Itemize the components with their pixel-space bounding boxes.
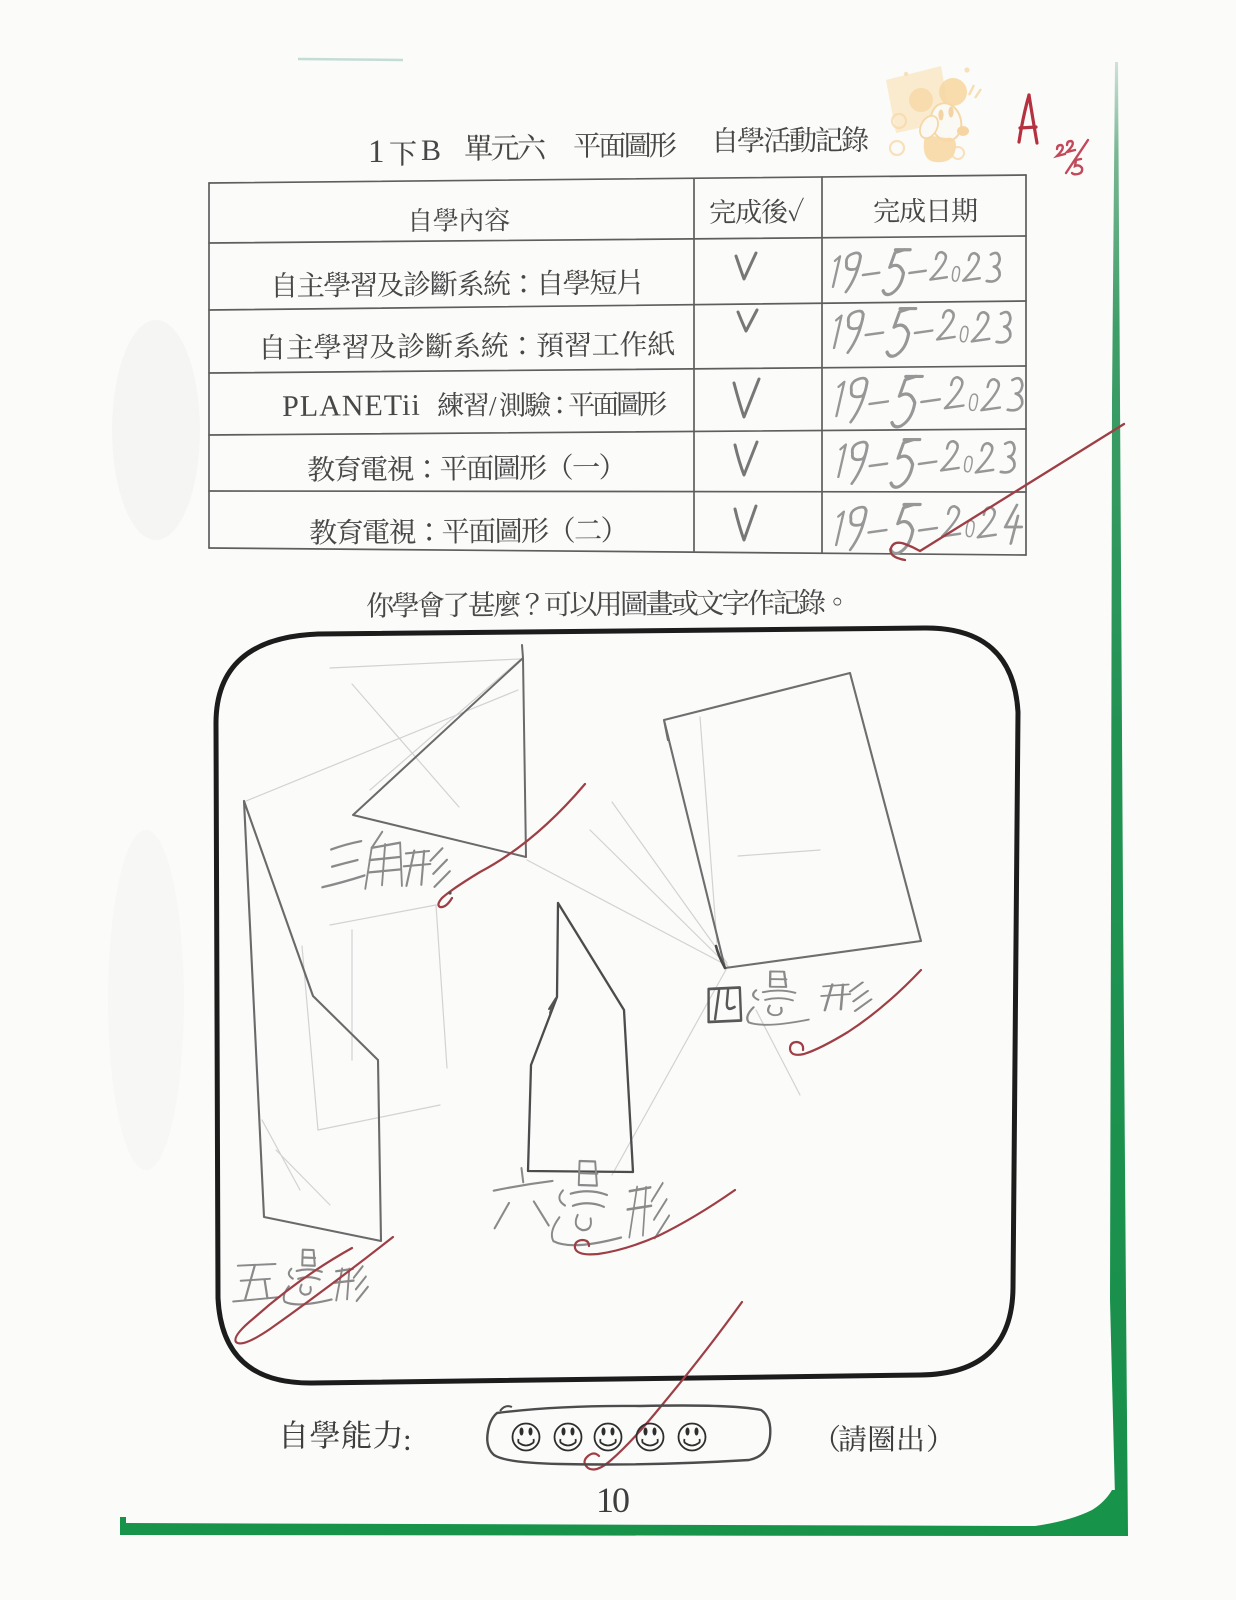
svg-text:PLANETii: PLANETii	[282, 389, 421, 423]
svg-text::: :	[403, 1422, 412, 1457]
svg-text:10: 10	[596, 1480, 629, 1520]
svg-text:1: 1	[368, 134, 385, 170]
svg-text:/: /	[489, 391, 497, 421]
svg-text:B: B	[421, 134, 441, 167]
